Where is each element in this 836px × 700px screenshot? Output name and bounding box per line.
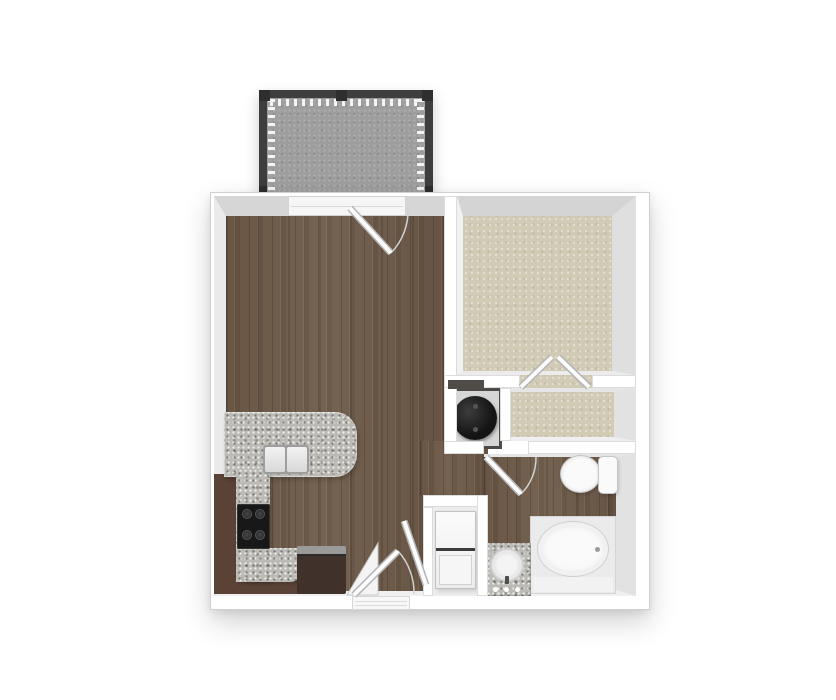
balcony-railing-balusters-right	[417, 99, 424, 191]
balcony-railing-balusters-left	[268, 99, 275, 191]
washer-dryer-divider	[436, 548, 475, 551]
stove-burner	[242, 509, 252, 519]
toilet-tank	[598, 456, 618, 494]
entry-threshold-track	[355, 601, 407, 602]
balcony-post-top-left	[259, 90, 270, 101]
stove-burner	[242, 530, 252, 540]
refrigerator	[297, 546, 346, 594]
bedroom-closet-floor	[511, 388, 636, 441]
wall-bedroom-closet-right	[592, 375, 636, 388]
washer-dryer-lower-panel	[439, 555, 472, 585]
water-heater-fitting	[473, 404, 478, 409]
washer-dryer-stack	[435, 511, 476, 589]
kitchen-sink-basin-right	[287, 447, 307, 472]
closet-wall-shelf	[448, 380, 484, 389]
wall-utility-closet-divider	[500, 388, 511, 441]
kitchen-sink	[263, 445, 309, 474]
wall-laundry-left	[423, 507, 433, 596]
vanity-faucet	[505, 576, 509, 584]
kitchen-counter-bottom-run	[236, 548, 302, 582]
balcony-door-track	[291, 206, 403, 207]
vanity-knob	[504, 587, 509, 592]
entry-threshold	[352, 596, 410, 610]
wall-laundry-bathroom	[477, 495, 488, 596]
kitchen-sink-basin-left	[265, 447, 285, 472]
entry-threshold-track	[355, 605, 407, 606]
balcony-door-recess	[288, 196, 406, 216]
wall-closet-bathroom-left	[444, 441, 484, 454]
wall-living-bedroom	[444, 196, 457, 453]
water-heater-fitting	[473, 427, 478, 432]
vanity-knob	[493, 587, 498, 592]
wall-closet-bathroom-right	[528, 441, 636, 454]
floor-plan-canvas	[0, 0, 836, 700]
balcony-post-top-right	[422, 90, 433, 101]
toilet-bowl	[560, 455, 601, 493]
vanity-knob	[515, 587, 520, 592]
stove	[237, 504, 270, 549]
bathtub-faucet	[595, 547, 600, 552]
closet-door-opening	[520, 375, 592, 388]
water-heater	[453, 396, 497, 440]
stove-burner	[255, 530, 265, 540]
bedroom-floor	[457, 196, 636, 375]
kitchen-cabinet-face-left	[214, 474, 238, 594]
bathtub-ledge	[533, 577, 613, 592]
stove-burner	[255, 509, 265, 519]
bathtub-surround	[530, 516, 616, 594]
bathroom-vanity	[484, 543, 531, 596]
balcony-post-top-center	[336, 90, 347, 101]
